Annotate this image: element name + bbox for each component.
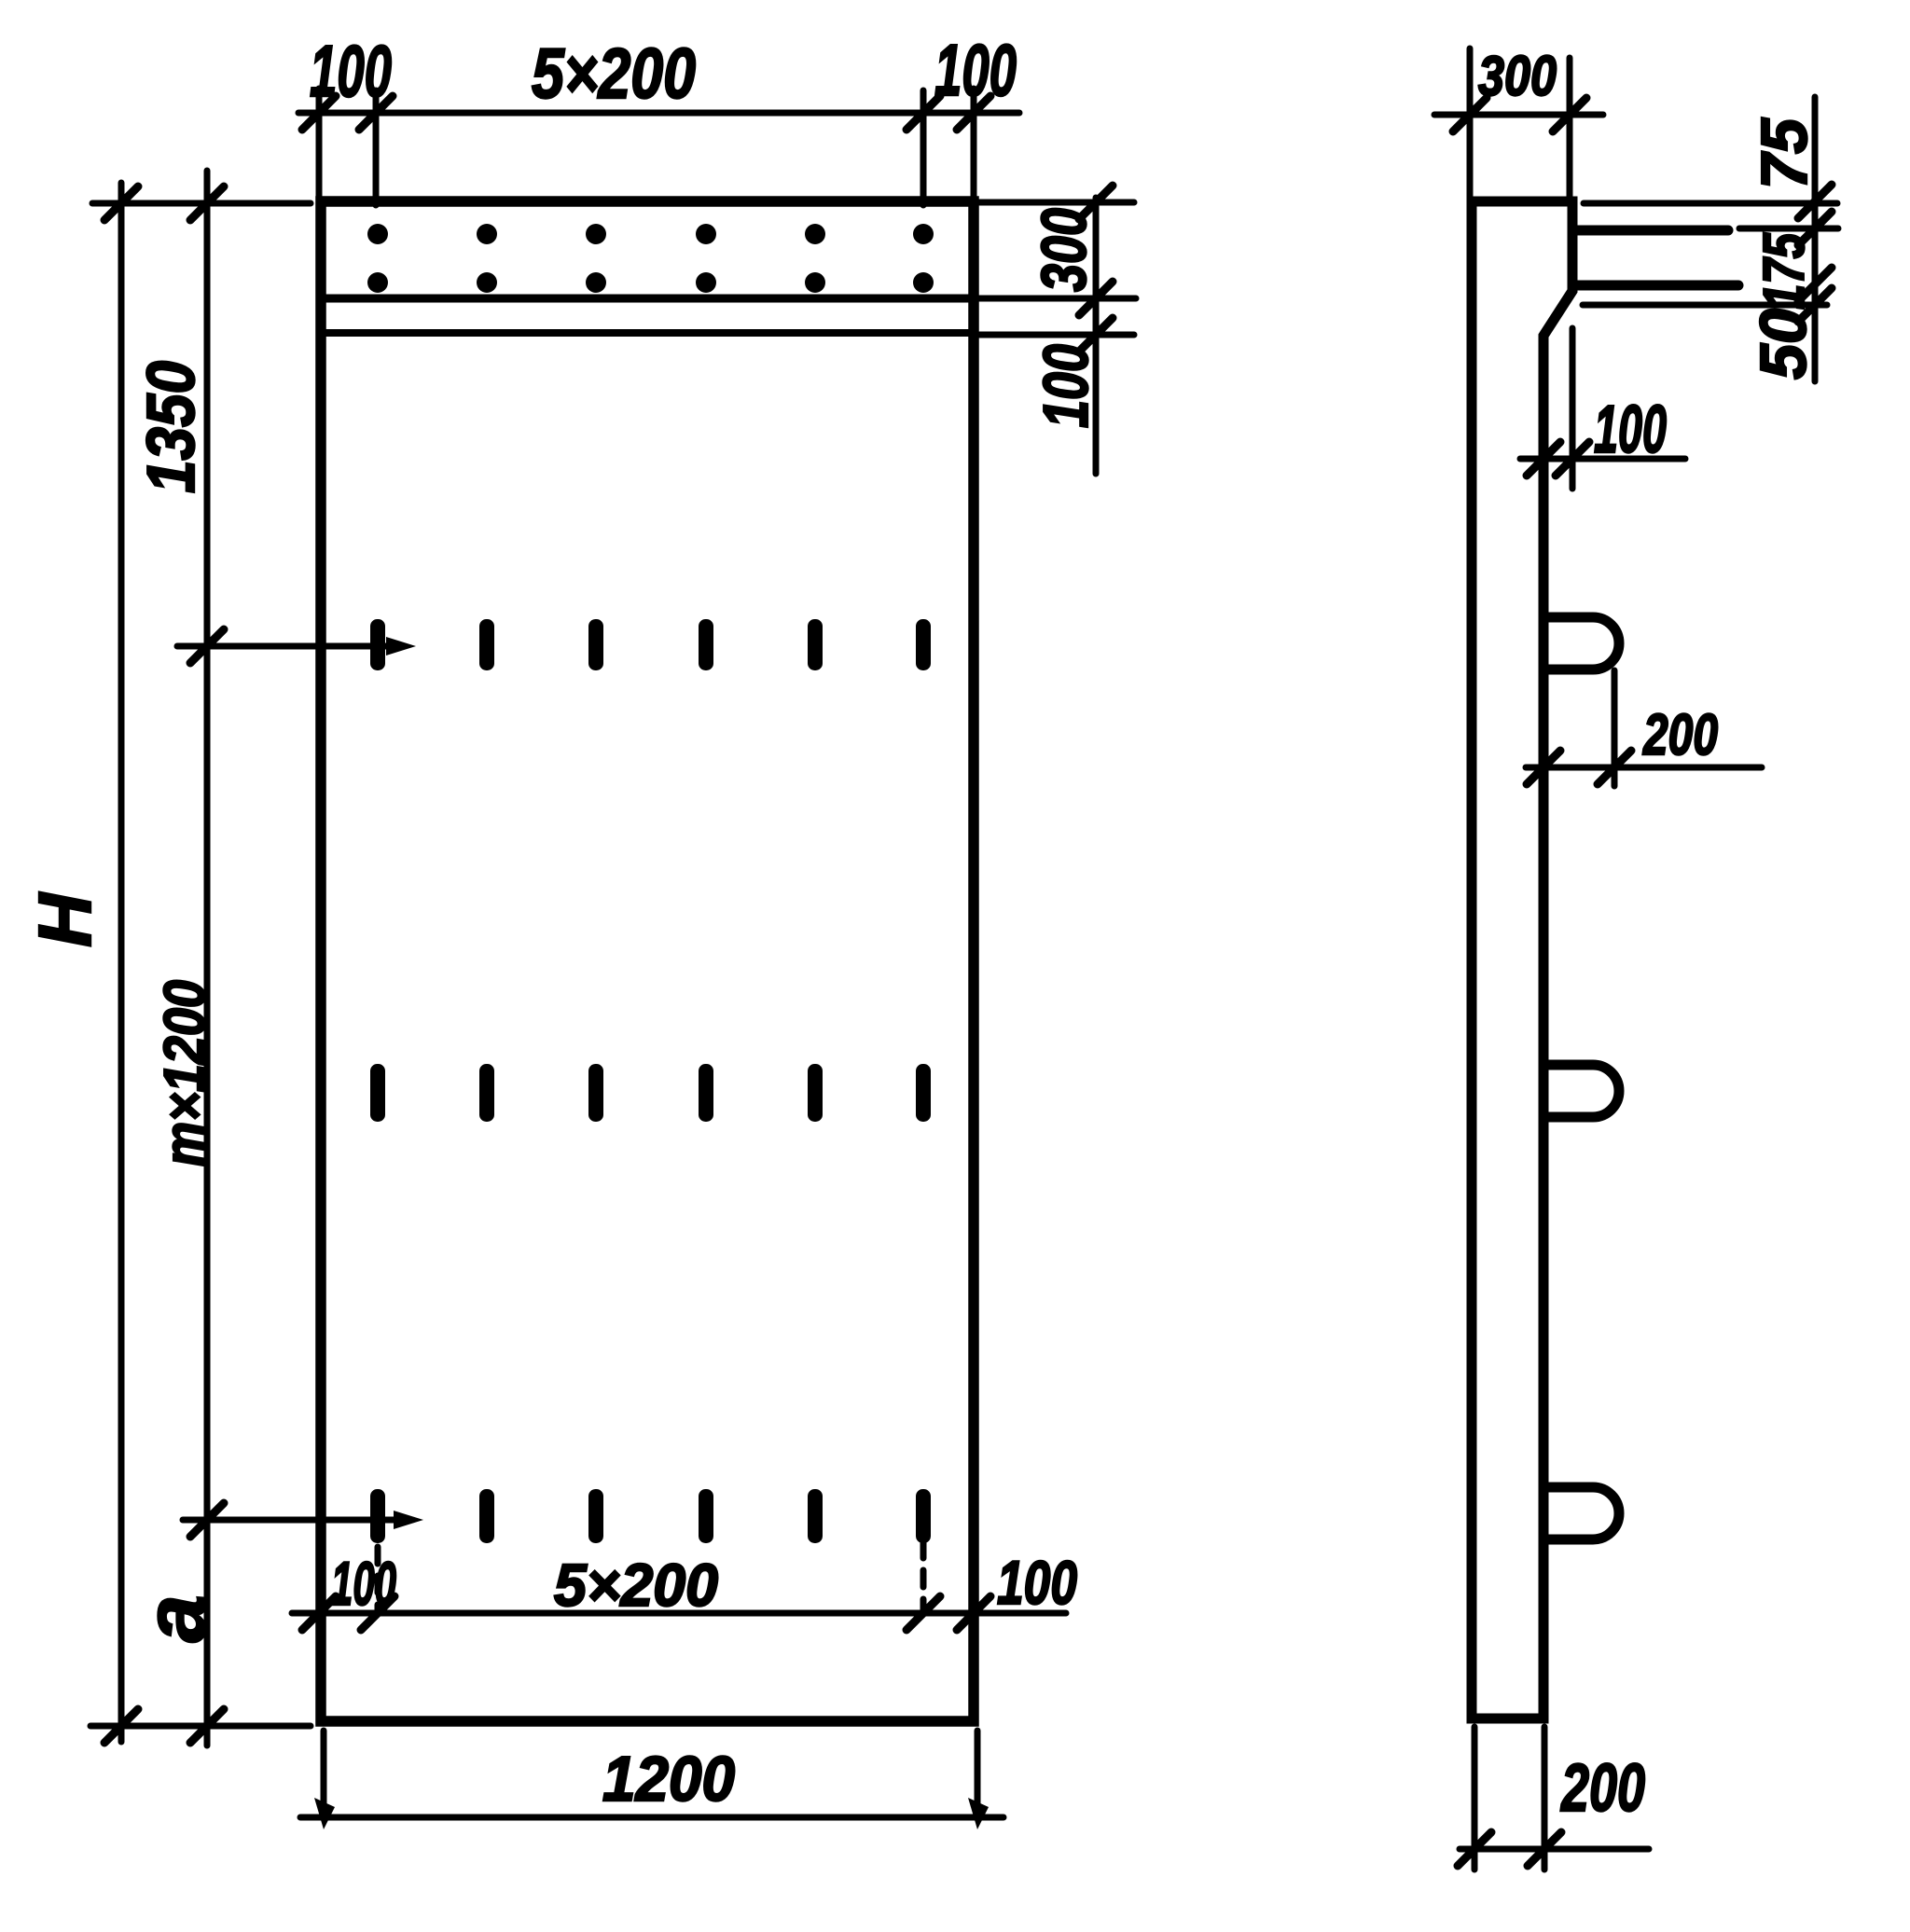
svg-text:175: 175 bbox=[1752, 232, 1817, 310]
svg-text:100: 100 bbox=[1031, 344, 1101, 428]
svg-text:100: 100 bbox=[331, 1549, 396, 1618]
svg-text:100: 100 bbox=[1594, 393, 1667, 467]
svg-text:a: a bbox=[128, 1594, 223, 1642]
svg-text:5×200: 5×200 bbox=[532, 34, 696, 114]
svg-text:1200: 1200 bbox=[602, 1744, 735, 1815]
svg-text:H: H bbox=[23, 891, 106, 947]
svg-text:5×200: 5×200 bbox=[554, 1552, 718, 1619]
svg-text:200: 200 bbox=[1560, 1751, 1645, 1826]
svg-text:100: 100 bbox=[310, 30, 392, 112]
svg-text:75: 75 bbox=[1748, 117, 1820, 189]
svg-text:50: 50 bbox=[1747, 309, 1820, 379]
svg-text:100: 100 bbox=[997, 1548, 1077, 1617]
svg-text:300: 300 bbox=[1029, 208, 1100, 292]
svg-text:300: 300 bbox=[1478, 45, 1557, 107]
svg-text:200: 200 bbox=[1642, 703, 1718, 767]
svg-text:100: 100 bbox=[934, 29, 1017, 111]
svg-text:m×1200: m×1200 bbox=[153, 980, 217, 1166]
svg-text:1350: 1350 bbox=[134, 361, 209, 493]
